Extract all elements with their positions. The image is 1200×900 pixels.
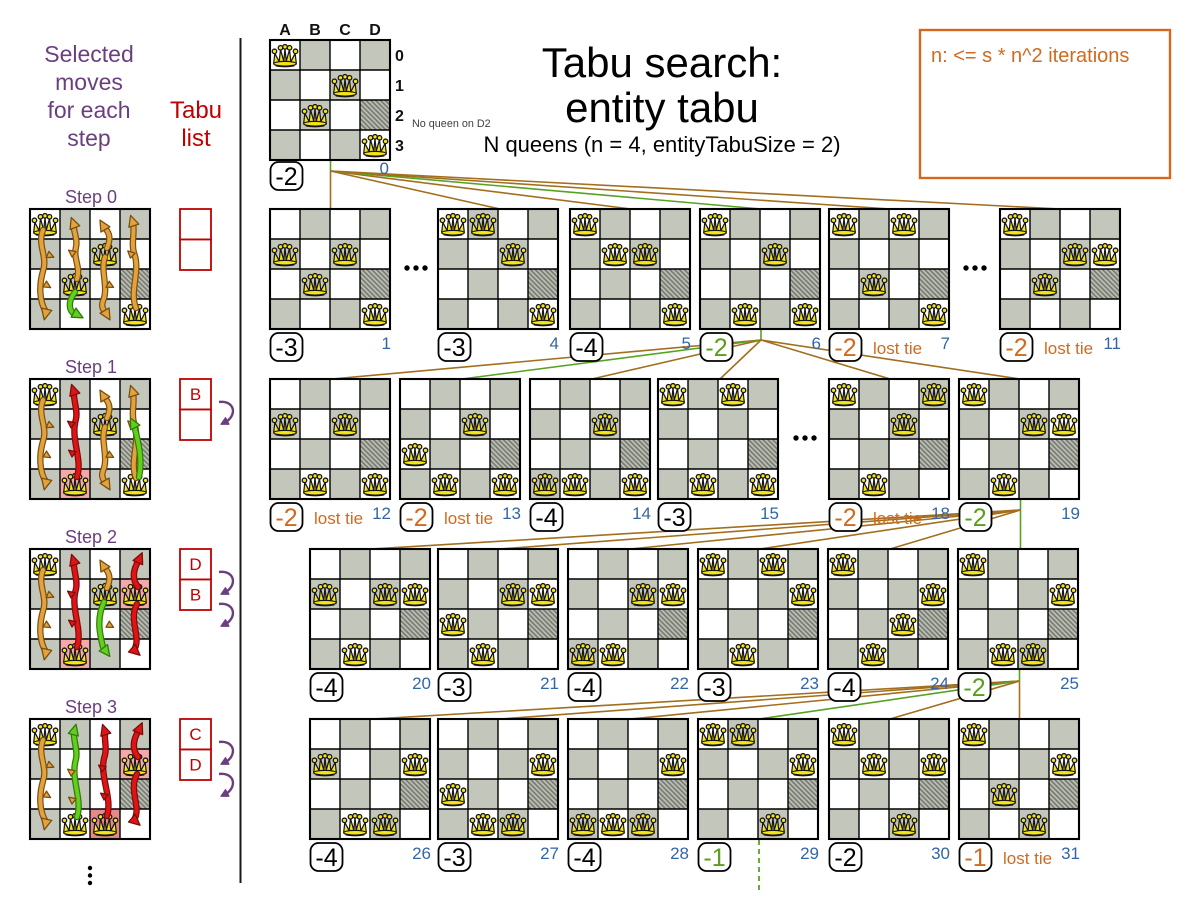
svg-text:Step 3: Step 3 (65, 697, 117, 717)
svg-text:23: 23 (800, 674, 819, 693)
svg-text:lost tie: lost tie (1044, 339, 1093, 358)
svg-text:20: 20 (412, 674, 431, 693)
svg-text:13: 13 (502, 504, 521, 523)
svg-text:-2: -2 (275, 504, 297, 532)
svg-text:5: 5 (682, 334, 691, 353)
svg-text:21: 21 (540, 674, 559, 693)
svg-text:6: 6 (812, 334, 821, 353)
svg-text:26: 26 (412, 844, 431, 863)
svg-text:14: 14 (632, 504, 651, 523)
svg-text:entity tabu: entity tabu (565, 84, 759, 131)
svg-text:lost tie: lost tie (873, 339, 922, 358)
svg-text:12: 12 (372, 504, 391, 523)
svg-text:-1: -1 (964, 844, 986, 872)
svg-text:-4: -4 (573, 844, 595, 872)
svg-text:-2: -2 (834, 334, 856, 362)
svg-text:lost tie: lost tie (444, 509, 493, 528)
svg-text:29: 29 (800, 844, 819, 863)
svg-text:B: B (190, 586, 201, 605)
svg-text:-2: -2 (963, 674, 985, 702)
svg-text:-4: -4 (575, 334, 597, 362)
svg-text:-4: -4 (535, 504, 557, 532)
svg-text:31: 31 (1061, 844, 1080, 863)
svg-text:30: 30 (931, 844, 950, 863)
svg-text:1: 1 (382, 334, 391, 353)
svg-text:4: 4 (550, 334, 559, 353)
svg-text:B: B (190, 385, 201, 404)
svg-text:D: D (189, 756, 201, 775)
svg-text:C: C (189, 725, 201, 744)
svg-text:-2: -2 (964, 504, 986, 532)
svg-text:-4: -4 (573, 674, 595, 702)
svg-text:-2: -2 (405, 504, 427, 532)
svg-text:list: list (181, 125, 211, 152)
svg-text:-2: -2 (705, 334, 727, 362)
svg-text:-4: -4 (833, 674, 855, 702)
svg-text:D: D (189, 555, 201, 574)
svg-text:Tabu: Tabu (170, 97, 222, 124)
svg-text:-4: -4 (315, 674, 337, 702)
svg-text:-3: -3 (443, 674, 465, 702)
svg-text:-3: -3 (443, 334, 465, 362)
svg-text:n: <= s * n^2 iterations: n: <= s * n^2 iterations (931, 45, 1129, 67)
svg-text:lost tie: lost tie (314, 509, 363, 528)
svg-text:No queen on D2: No queen on D2 (412, 118, 491, 130)
svg-text:0: 0 (395, 48, 404, 65)
svg-text:25: 25 (1060, 674, 1079, 693)
svg-text:Tabu search:: Tabu search: (542, 39, 782, 86)
svg-text:N queens (n = 4, entityTabuSiz: N queens (n = 4, entityTabuSize = 2) (483, 132, 840, 157)
svg-text:-1: -1 (703, 844, 725, 872)
svg-text:28: 28 (670, 844, 689, 863)
svg-text:-3: -3 (443, 844, 465, 872)
svg-text:-2: -2 (834, 504, 856, 532)
svg-text:Step 2: Step 2 (65, 527, 117, 547)
svg-text:lost tie: lost tie (1003, 849, 1052, 868)
svg-text:27: 27 (540, 844, 559, 863)
svg-text:Selected: Selected (44, 41, 134, 67)
svg-text:11: 11 (1103, 334, 1121, 353)
svg-text:-3: -3 (663, 504, 685, 532)
svg-text:1: 1 (395, 78, 404, 95)
svg-text:2: 2 (395, 108, 404, 125)
svg-text:lost tie: lost tie (873, 509, 922, 528)
svg-text:22: 22 (670, 674, 689, 693)
svg-text:-2: -2 (834, 844, 856, 872)
svg-text:A: A (279, 22, 291, 39)
svg-text:0: 0 (380, 159, 389, 178)
svg-text:3: 3 (395, 138, 404, 155)
svg-text:D: D (369, 22, 381, 39)
svg-text:-2: -2 (1005, 334, 1027, 362)
svg-text:Step 0: Step 0 (65, 187, 117, 207)
svg-text:step: step (67, 125, 110, 151)
svg-text:-4: -4 (315, 844, 337, 872)
svg-text:18: 18 (931, 504, 950, 523)
svg-text:-3: -3 (703, 674, 725, 702)
svg-text:for each: for each (47, 97, 130, 123)
svg-text:C: C (339, 22, 351, 39)
svg-text:15: 15 (760, 504, 779, 523)
svg-text:moves: moves (55, 69, 123, 95)
svg-text:-3: -3 (275, 334, 297, 362)
svg-text:-2: -2 (275, 163, 297, 191)
svg-text:19: 19 (1061, 504, 1080, 523)
svg-text:Step 1: Step 1 (65, 357, 117, 377)
svg-text:7: 7 (941, 334, 950, 353)
svg-text:24: 24 (930, 674, 949, 693)
svg-text:B: B (309, 22, 321, 39)
